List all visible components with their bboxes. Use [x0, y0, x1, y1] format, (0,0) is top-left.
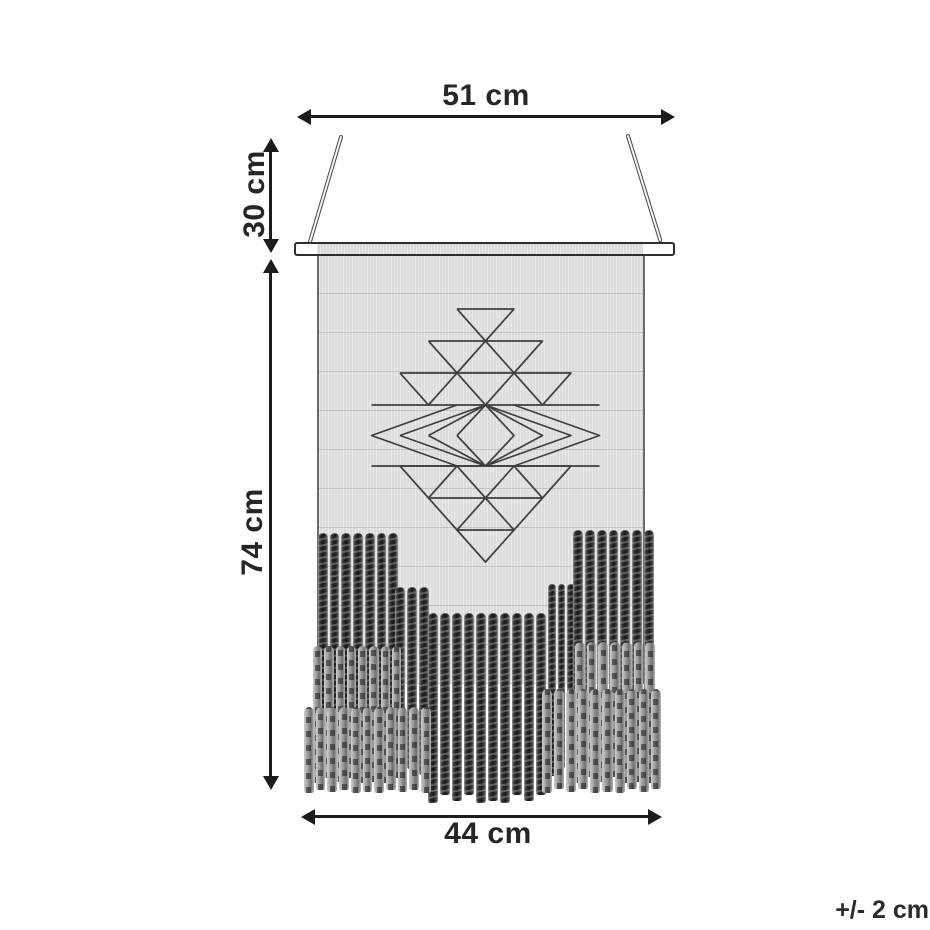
- motif-line: [400, 373, 457, 405]
- motif-line: [400, 405, 571, 466]
- motif-line: [514, 405, 600, 466]
- fringe-cord: [554, 689, 564, 789]
- label-top-width: 51 cm: [411, 81, 561, 111]
- label-hanging-height: 30 cm: [240, 119, 270, 269]
- fringe-cord: [316, 707, 326, 790]
- motif-line: [457, 309, 514, 341]
- motif-line: [372, 405, 458, 466]
- fringe-cord: [602, 689, 612, 792]
- fringe-cord: [363, 707, 373, 792]
- fringe-cord: [651, 689, 661, 789]
- motif-line: [514, 373, 571, 405]
- wall-hanging-rod: [294, 242, 675, 256]
- motif-line: [400, 466, 457, 498]
- motif-line: [514, 466, 571, 498]
- arrowhead-right-icon: [661, 109, 675, 125]
- motif-line: [457, 530, 514, 562]
- arrowhead-right-icon: [648, 809, 662, 825]
- fringe-cord: [566, 689, 576, 792]
- rod-fabric-wrap: [317, 244, 643, 254]
- dimension-arrow-top-width: [310, 115, 662, 118]
- motif-line: [429, 405, 543, 466]
- arrowhead-left-icon: [297, 109, 311, 125]
- motif-line: [429, 341, 486, 373]
- fringe-cord: [351, 707, 361, 793]
- fringe-cord: [488, 613, 498, 801]
- fringe-cord: [512, 613, 522, 795]
- fringe-cord: [374, 707, 384, 793]
- fringe-tier: [428, 613, 546, 803]
- fringe-cord: [464, 613, 474, 795]
- tolerance-note: +/- 2 cm: [749, 895, 929, 925]
- fringe-cord: [386, 707, 396, 790]
- fringe-cord: [590, 689, 600, 793]
- fringe-tier: [304, 707, 431, 793]
- arrowhead-down-icon: [263, 776, 279, 790]
- motif-line: [457, 373, 514, 405]
- motif-line: [457, 466, 514, 498]
- fringe-cord: [409, 707, 419, 790]
- dimension-diagram: 51 cm 30 cm 74 cm 44 cm +/- 2 cm: [0, 0, 930, 930]
- fringe-cord: [440, 613, 450, 795]
- label-body-height: 74 cm: [238, 457, 268, 607]
- motif-line: [486, 341, 543, 373]
- fringe-cord: [421, 707, 431, 793]
- fringe-cord: [615, 689, 625, 793]
- fringe-tier: [542, 689, 661, 793]
- arrowhead-up-icon: [263, 259, 279, 273]
- fringe-cord: [639, 689, 649, 792]
- fringe-cord: [476, 613, 486, 803]
- fringe-cord: [398, 707, 408, 792]
- motif-line: [429, 498, 486, 530]
- motif-line: [457, 405, 514, 466]
- fringe-cord: [304, 707, 314, 793]
- fringe-cord: [542, 689, 552, 793]
- fringe-cord: [339, 707, 349, 790]
- fringe-cord: [452, 613, 462, 801]
- fringe-cord: [327, 707, 337, 792]
- fringe-cord: [524, 613, 534, 801]
- fringe-cord: [500, 613, 510, 803]
- arrowhead-left-icon: [301, 809, 315, 825]
- motif-line: [486, 498, 543, 530]
- fringe-cord: [627, 689, 637, 789]
- label-bottom-width: 44 cm: [413, 819, 563, 849]
- fringe-cord: [578, 689, 588, 789]
